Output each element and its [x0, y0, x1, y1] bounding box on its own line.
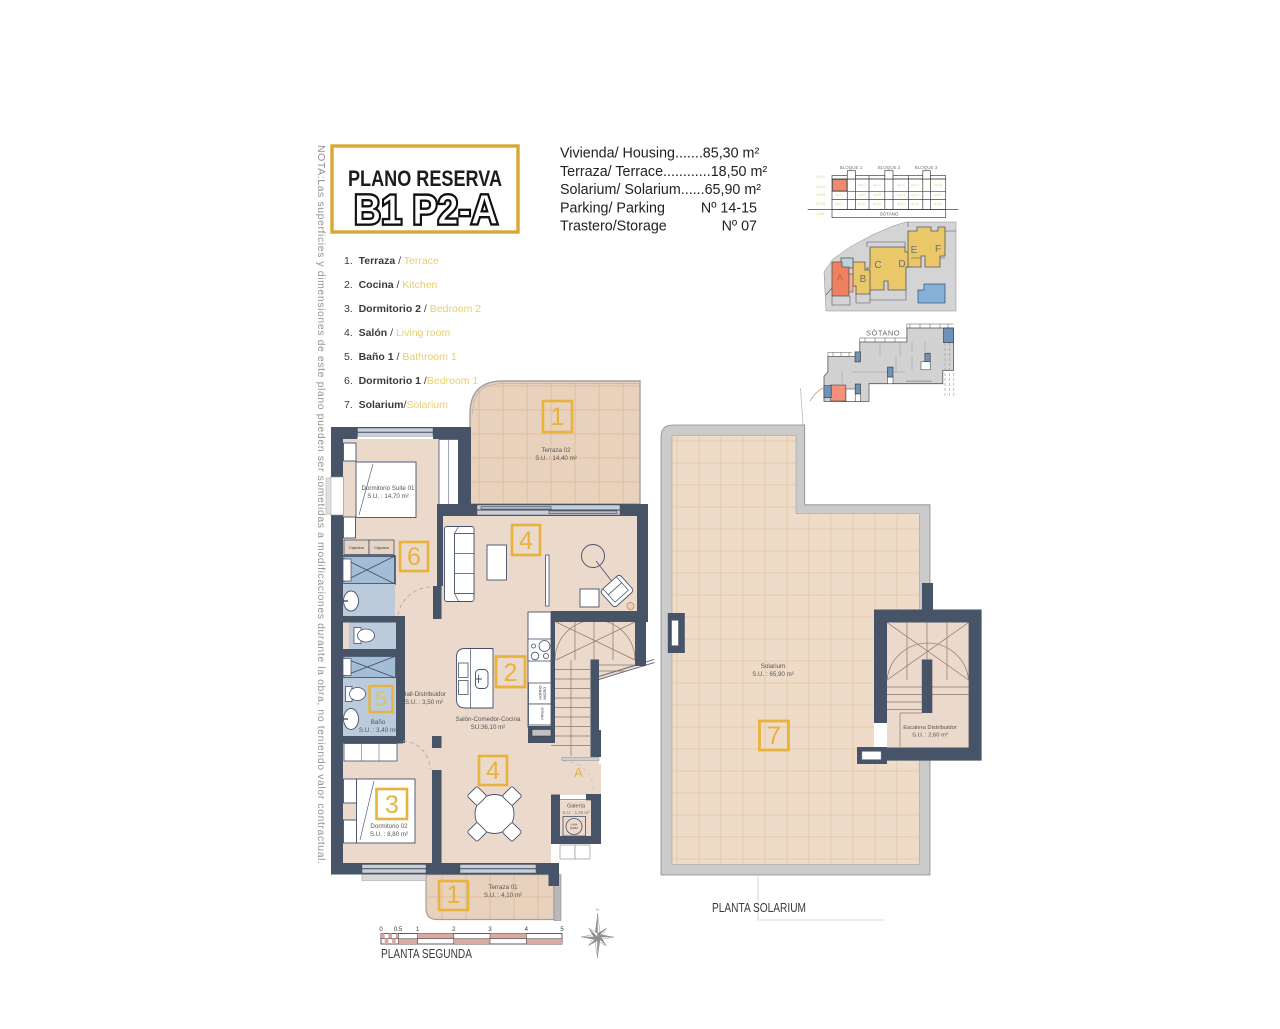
svg-text:Terraza 01: Terraza 01: [488, 884, 518, 891]
svg-text:4: 4: [519, 527, 533, 555]
svg-text:E: E: [911, 245, 918, 256]
svg-text:B1 P2-A: B1 P2-A: [354, 186, 498, 233]
svg-text:N: N: [596, 907, 599, 912]
svg-text:S.U. : 3,40 m²: S.U. : 3,40 m²: [359, 727, 397, 734]
svg-text:1: 1: [447, 881, 461, 909]
svg-text:Solarium: Solarium: [761, 663, 785, 670]
svg-text:C: C: [874, 260, 881, 271]
svg-text:6. Dormitorio 1 /Bedroom 1: 6. Dormitorio 1 /Bedroom 1: [344, 375, 478, 387]
svg-text:S.U. : 2,60 m²: S.U. : 2,60 m²: [912, 733, 948, 739]
svg-text:D: D: [898, 259, 905, 270]
svg-text:4. Salón / Living room: 4. Salón / Living room: [344, 327, 450, 339]
svg-text:S.U. : 65,90 m²: S.U. : 65,90 m²: [752, 671, 794, 678]
svg-text:Dormitorio 02: Dormitorio 02: [370, 823, 408, 830]
svg-text:Vivienda/ Housing.......85,30: Vivienda/ Housing.......85,30 m²: [560, 146, 759, 162]
svg-text:F: F: [935, 244, 941, 255]
svg-text:Nº 14-15: Nº 14-15: [701, 200, 757, 216]
svg-text:Hall-Distribuidor: Hall-Distribuidor: [402, 691, 446, 698]
svg-text:B: B: [860, 274, 867, 285]
svg-text:ap.B4: ap.B4: [911, 202, 920, 206]
svg-text:5. Baño 1 / Bathroom 1: 5. Baño 1 / Bathroom 1: [344, 351, 457, 363]
svg-text:A: A: [837, 273, 844, 284]
svg-text:PLANTA SEGUNDA: PLANTA SEGUNDA: [381, 947, 473, 961]
svg-text:ap.B2: ap.B2: [873, 202, 882, 206]
svg-text:S.U. : 4,10 m²: S.U. : 4,10 m²: [484, 892, 522, 899]
svg-text:+9.20: +9.20: [815, 174, 826, 179]
svg-text:PLANTA SOLARIUM: PLANTA SOLARIUM: [712, 901, 806, 915]
svg-text:S.U. : 14,40 m²: S.U. : 14,40 m²: [535, 455, 577, 462]
svg-text:0.5: 0.5: [394, 927, 403, 933]
svg-text:Escalera Distribuidor: Escalera Distribuidor: [903, 725, 957, 731]
svg-text:HORNO: HORNO: [539, 685, 543, 699]
svg-text:ap.11: ap.11: [873, 183, 881, 187]
svg-text:ap.10: ap.10: [897, 183, 905, 187]
svg-text:ap.03: ap.03: [911, 193, 919, 197]
svg-text:2: 2: [504, 659, 518, 687]
svg-text:3: 3: [385, 791, 399, 819]
svg-text:Trastero/Storage: Trastero/Storage: [560, 219, 667, 235]
svg-text:S.U. : 3,50 m²: S.U. : 3,50 m²: [405, 699, 443, 706]
svg-text:ap.06: ap.06: [858, 193, 866, 197]
svg-text:NOTA:Las superficies y dimensi: NOTA:Las superficies y dimensiones de es…: [315, 145, 327, 865]
svg-text:ap.05: ap.05: [873, 193, 881, 197]
svg-text:Galería: Galería: [567, 804, 586, 810]
svg-text:ap.09: ap.09: [911, 183, 919, 187]
svg-text:ap.04: ap.04: [897, 193, 905, 197]
svg-text:Cajonera: Cajonera: [374, 546, 389, 550]
svg-text:Dormitorio Suite 01: Dormitorio Suite 01: [362, 485, 416, 492]
svg-text:+3.05: +3.05: [815, 192, 826, 197]
svg-text:3. Dormitorio 2 / Bedroom 2: 3. Dormitorio 2 / Bedroom 2: [344, 303, 481, 315]
svg-text:1. Terraza / Terrace: 1. Terraza / Terrace: [344, 255, 439, 267]
svg-text:Terraza/ Terrace............18: Terraza/ Terrace............18,50 m²: [560, 164, 767, 180]
svg-text:Cajonera: Cajonera: [349, 546, 364, 550]
svg-text:BLOQUE 1: BLOQUE 1: [840, 165, 863, 170]
svg-text:Salón-Comedor-Cocina: Salón-Comedor-Cocina: [456, 716, 521, 723]
svg-text:SU:36,10 m²: SU:36,10 m²: [471, 724, 506, 731]
svg-text:S.U. : 1,60 m²: S.U. : 1,60 m²: [562, 810, 590, 815]
svg-text:Parking/ Parking: Parking/ Parking: [560, 200, 665, 216]
svg-text:Solarium/ Solarium......65,90: Solarium/ Solarium......65,90 m²: [560, 182, 761, 198]
svg-text:+6.10: +6.10: [815, 184, 826, 189]
svg-text:7. Solarium/Solarium: 7. Solarium/Solarium: [344, 399, 448, 411]
svg-text:ap.08: ap.08: [934, 183, 942, 187]
svg-text:ap.01: ap.01: [835, 202, 843, 206]
svg-text:S.U. : 8,80 m²: S.U. : 8,80 m²: [370, 831, 408, 838]
svg-text:ap.B1: ap.B1: [858, 202, 867, 206]
svg-text:5: 5: [375, 688, 387, 711]
svg-text:BLOQUE 3: BLOQUE 3: [915, 165, 938, 170]
svg-text:7: 7: [767, 722, 781, 750]
svg-text:+0.00: +0.00: [815, 201, 826, 206]
svg-text:ap.02: ap.02: [934, 193, 942, 197]
svg-text:BLOQUE 2: BLOQUE 2: [878, 165, 901, 170]
svg-text:ap.B3: ap.B3: [897, 202, 906, 206]
svg-text:Baño: Baño: [371, 719, 386, 726]
svg-text:A: A: [574, 765, 583, 780]
svg-text:SÓTANO: SÓTANO: [866, 329, 900, 338]
svg-text:ap.12: ap.12: [858, 183, 866, 187]
svg-text:Terraza 02: Terraza 02: [541, 447, 571, 454]
svg-text:ap.07: ap.07: [835, 193, 843, 197]
svg-text:Nº 07: Nº 07: [722, 219, 757, 235]
svg-text:S.U. : 14,70 m²: S.U. : 14,70 m²: [367, 493, 409, 500]
svg-text:MICRO: MICRO: [543, 687, 547, 700]
svg-text:1: 1: [551, 403, 565, 431]
svg-text:-3.05: -3.05: [815, 211, 825, 216]
svg-text:DORA: DORA: [570, 826, 578, 830]
svg-text:2. Cocina / Kitchen: 2. Cocina / Kitchen: [344, 279, 438, 291]
svg-text:ap.B5: ap.B5: [934, 202, 943, 206]
svg-text:SÓTANO: SÓTANO: [880, 211, 899, 217]
svg-text:6: 6: [407, 543, 421, 571]
svg-text:FRIGO: FRIGO: [541, 707, 545, 719]
svg-text:4: 4: [486, 757, 500, 785]
